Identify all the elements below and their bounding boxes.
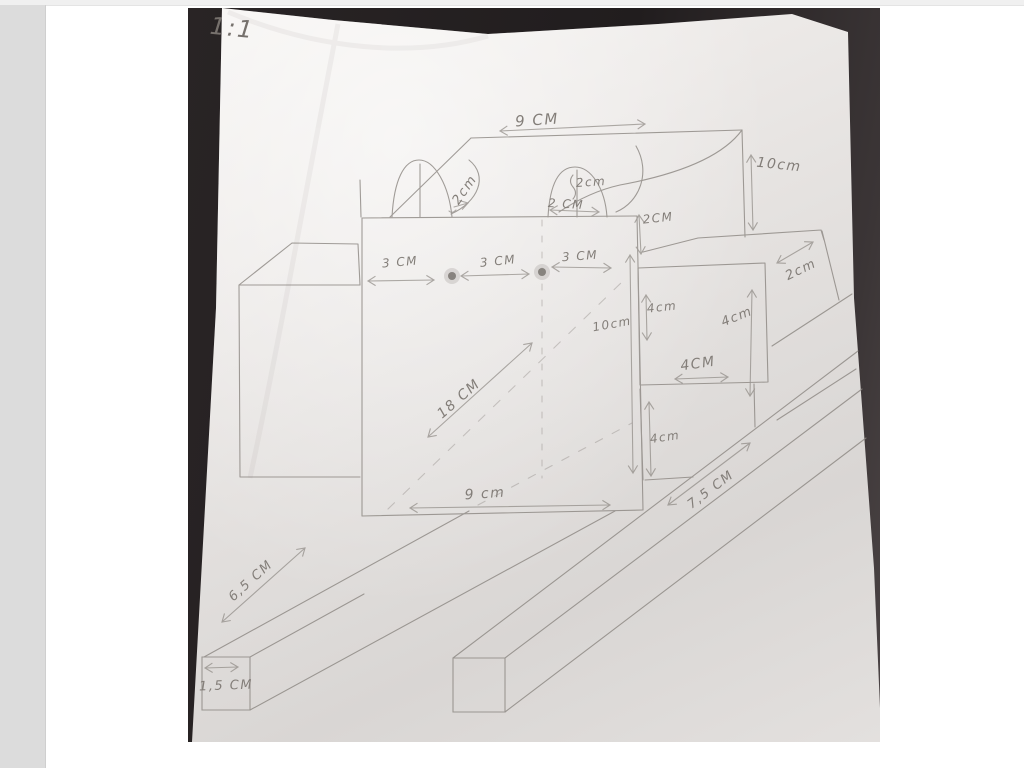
dim-label-dim-9cm-top: 9 CM — [515, 109, 560, 130]
dim-label-dim-2cm-arch2-width: 2 CM — [548, 196, 585, 212]
dim-label-dim-10cm-inner: 10cm — [591, 314, 632, 335]
dimension-labels: 1:1 9 CM10cm2cm2cm2 CM2CM2cm3 CM3 CM3 CM… — [188, 8, 880, 742]
dim-label-dim-3cm-a: 3 CM — [381, 253, 418, 270]
photo-of-sketch: 1:1 9 CM10cm2cm2cm2 CM2CM2cm3 CM3 CM3 CM… — [188, 8, 880, 742]
dim-label-dim-3cm-c: 3 CM — [561, 248, 598, 264]
dim-label-dim-9cm-bottom: 9 cm — [464, 485, 506, 504]
dim-label-dim-4cm-lower: 4cm — [649, 428, 681, 446]
dim-label-dim-18cm: 18 CM — [434, 376, 483, 422]
dim-label-dim-4cm-right: 4cm — [719, 304, 755, 330]
dim-label-dim-2cm-arch2-height: 2cm — [575, 174, 606, 190]
top-strip — [0, 0, 1024, 6]
dim-label-dim-10cm-roof: 10cm — [756, 155, 803, 176]
dim-label-dim-3cm-b: 3 CM — [479, 252, 516, 270]
dim-label-dim-4cm-left: 4cm — [646, 298, 678, 315]
dim-label-dim-1-5cm: 1,5 CM — [199, 678, 254, 695]
dim-label-dim-2cm-depth: 2cm — [783, 256, 819, 284]
dim-label-dim-6-5cm: 6,5 CM — [226, 557, 276, 604]
scale-note: 1:1 — [209, 12, 256, 45]
dim-label-dim-2cm-arch1: 2cm — [450, 172, 481, 207]
dim-label-dim-7-5cm: 7,5 CM — [685, 468, 737, 513]
dim-label-dim-2cm-fold: 2CM — [642, 209, 674, 226]
dim-label-dim-4cm-width: 4CM — [679, 354, 716, 375]
left-panel-strip — [0, 5, 46, 768]
